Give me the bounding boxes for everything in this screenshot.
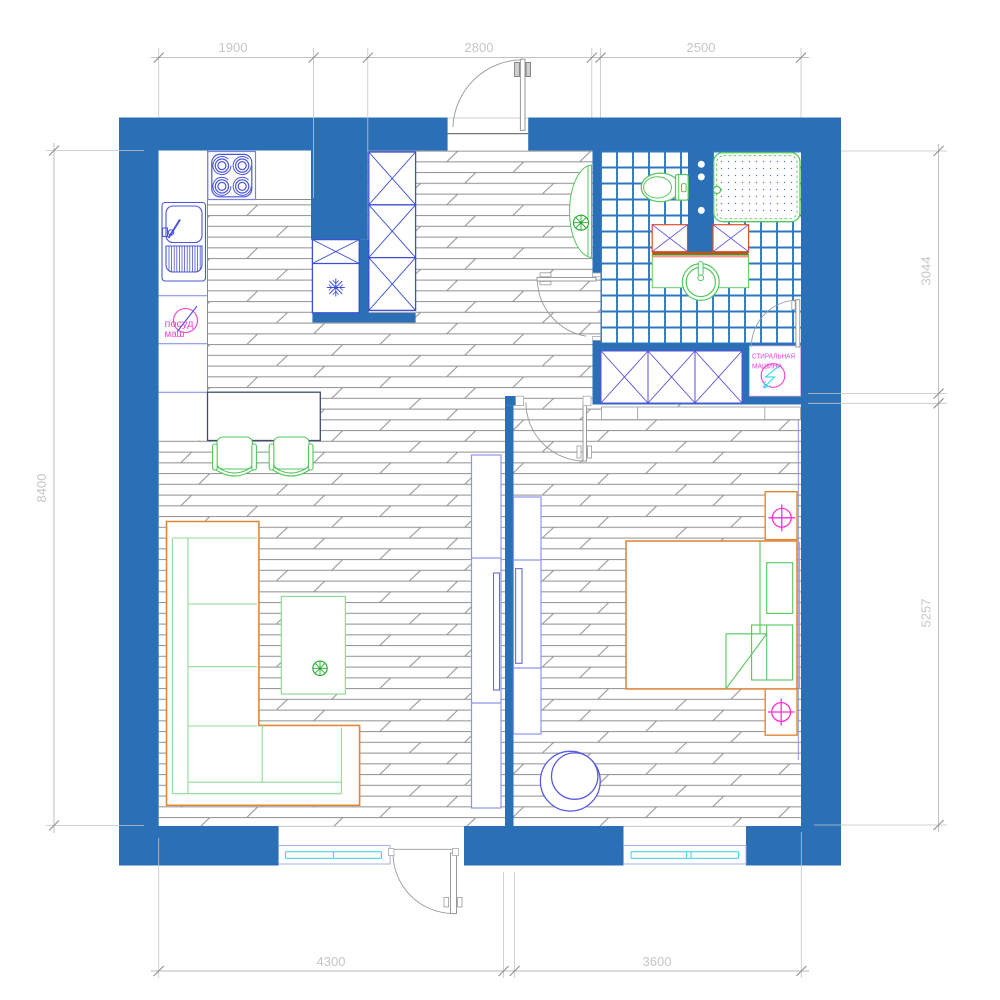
svg-text:5257: 5257	[919, 599, 934, 628]
svg-text:3600: 3600	[643, 954, 672, 969]
svg-text:СТИРАЛЬНАЯ: СТИРАЛЬНАЯ	[752, 352, 795, 361]
svg-text:3044: 3044	[919, 257, 934, 286]
svg-text:маш: маш	[165, 329, 185, 340]
svg-text:4300: 4300	[317, 954, 346, 969]
svg-text:2500: 2500	[687, 40, 716, 55]
svg-text:8400: 8400	[34, 474, 49, 503]
svg-text:2800: 2800	[465, 40, 494, 55]
svg-text:МАШИНА: МАШИНА	[752, 362, 782, 371]
svg-text:1900: 1900	[219, 40, 248, 55]
